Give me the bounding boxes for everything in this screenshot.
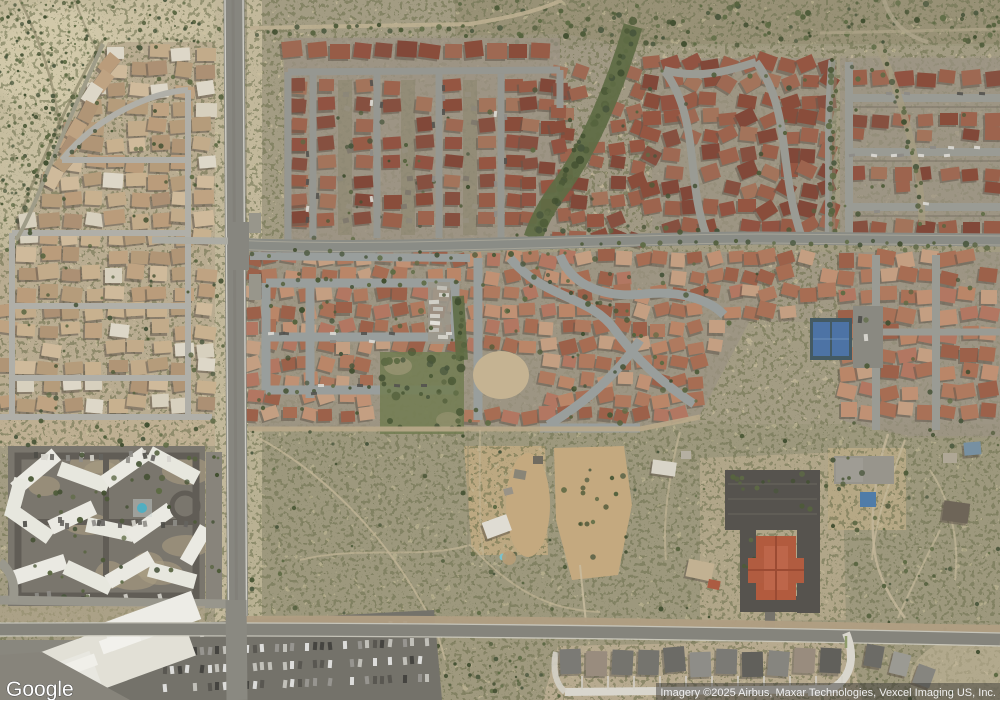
svg-text:Google: Google [6, 678, 74, 700]
svg-text:Imagery ©2025 Airbus, Maxar Te: Imagery ©2025 Airbus, Maxar Technologies… [660, 687, 996, 699]
